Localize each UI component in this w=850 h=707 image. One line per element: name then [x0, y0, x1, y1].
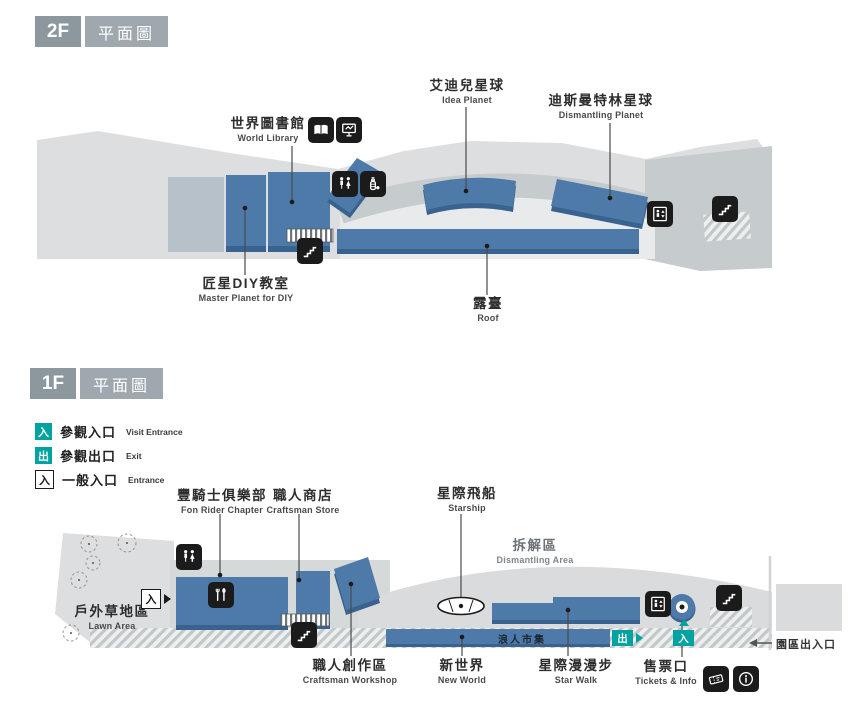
visit-entrance-key: 入	[35, 423, 52, 440]
f2-diy-room	[226, 175, 266, 246]
visit-exit-arrow-icon	[636, 633, 643, 643]
f1-label-craftsman-store: 職人商店 Craftsman Store	[266, 488, 339, 516]
legend-general-entrance: 入 一般入口 Entrance	[35, 470, 164, 489]
f2-badge: 2F 平面圖	[35, 16, 168, 47]
f1-label-star-walk: 星際漫漫步 Star Walk	[539, 658, 614, 686]
visit-entrance-marker: 入	[673, 630, 694, 646]
stairs-icon	[716, 585, 742, 611]
f2-annex-block	[168, 177, 224, 252]
restroom-icon	[176, 544, 202, 570]
f2-label-world-library: 世界圖書館 World Library	[231, 116, 306, 144]
ticket-icon	[703, 666, 729, 692]
legend-visit-exit: 出 參觀出口 Exit	[35, 446, 142, 465]
legend-visit-entrance: 入 參觀入口 Visit Entrance	[35, 422, 183, 441]
f1-label-fon-rider: 豐騎士俱樂部 Fon Rider Chapter	[177, 488, 267, 516]
stairs-icon	[712, 196, 738, 222]
f2-label-master-planet-diy: 匠星DIY教室 Master Planet for DIY	[199, 276, 294, 304]
f2-label-roof: 露臺 Roof	[473, 296, 503, 324]
f2-label-dismantling-planet: 迪斯曼特林星球 Dismantling Planet	[549, 93, 654, 121]
visit-entrance-arrow-icon	[679, 619, 689, 626]
f1-label-park-gate: 園區出入口	[776, 636, 836, 652]
f1-label-craftsman-workshop: 職人創作區 Craftsman Workshop	[303, 658, 397, 686]
nursing-room-icon	[360, 171, 386, 197]
f1-plan-badge: 平面圖	[80, 368, 163, 399]
visit-exit-key: 出	[35, 447, 52, 464]
f1-label-lawn-area: 戶外草地區 Lawn Area	[75, 604, 150, 632]
f1-label-market: 浪人市集	[498, 631, 546, 646]
f1-outside-square	[776, 584, 842, 631]
info-icon	[733, 666, 759, 692]
f2-label-idea-planet: 艾迪兒星球 Idea Planet	[430, 78, 505, 106]
f1-label-starship: 星際飛船 Starship	[437, 486, 497, 514]
book-icon	[308, 117, 334, 143]
f1-label-tickets-info: 售票口 Tickets & Info	[635, 659, 697, 687]
f1-label-new-world: 新世界 New World	[438, 658, 486, 686]
elevator-icon	[645, 591, 671, 617]
visit-exit-marker: 出	[612, 630, 633, 646]
general-entrance-marker: 入	[141, 589, 161, 609]
f1-badge: 1F 平面圖	[30, 368, 163, 399]
stairs-icon	[297, 238, 323, 264]
f2-plan-badge: 平面圖	[85, 16, 168, 47]
restaurant-icon	[208, 582, 234, 608]
presentation-icon	[336, 117, 362, 143]
f1-floor-badge: 1F	[30, 368, 76, 399]
floorplan-page: 2F 平面圖 艾迪兒星球 Idea Planet 迪斯曼特林星球 Dismant…	[0, 0, 850, 707]
f1-label-dismantling-area: 拆解區 Dismantling Area	[497, 538, 574, 566]
general-entrance-key: 入	[35, 470, 54, 489]
f2-floor-badge: 2F	[35, 16, 81, 47]
f1-starship-ellipse	[438, 598, 484, 615]
general-entrance-arrow-icon	[164, 594, 171, 604]
elevator-icon	[647, 201, 673, 227]
restroom-icon	[332, 171, 358, 197]
stairs-icon	[291, 622, 317, 648]
